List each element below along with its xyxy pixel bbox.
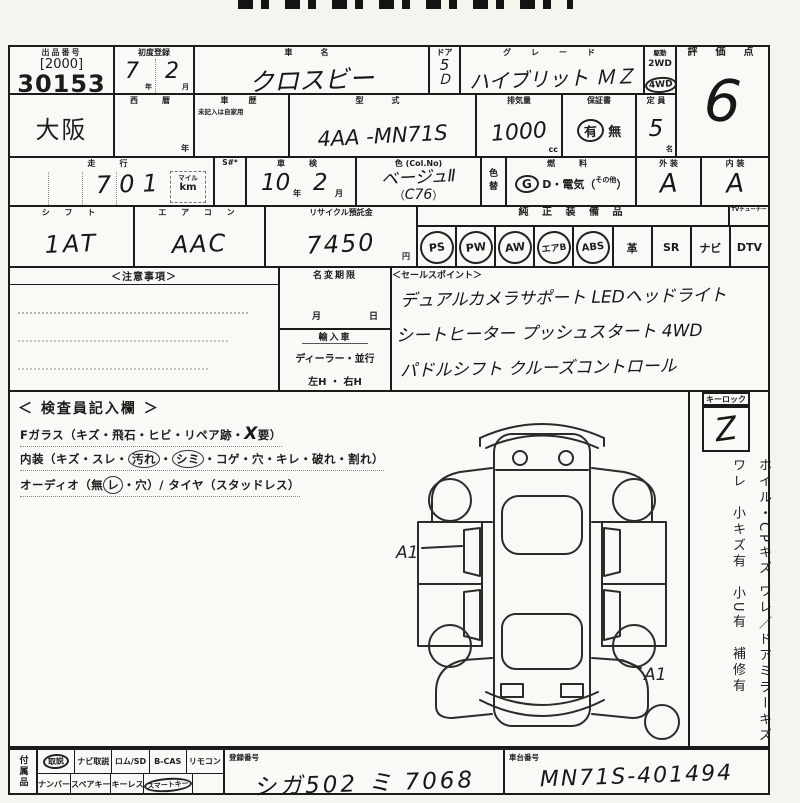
shaken-label: 車 検 [247,158,355,169]
sidebar-divider [688,392,690,750]
history-note: 未記入は自家用 [198,106,288,116]
accessories-label: 付属品 [10,750,36,793]
color-code-close: ） [432,189,443,202]
exterior-cell: 外 装 A [635,156,702,207]
shaken-month-unit: 月 [335,188,343,199]
acc-keyless: キーレス [110,774,143,795]
recycle-value: 7450 [265,226,416,262]
mileage-value: 701 [96,169,167,199]
acc-spare-key: スペアキー [70,774,110,795]
registration-number-cell: 登録番号 シガ502 ミ 7068 [223,748,505,795]
seireki-unit: 年 [181,143,189,154]
color-change-label-2: 替 [482,179,505,192]
seireki-label2: 西 暦 [115,95,193,106]
mileage-unit-km: km [171,182,205,193]
door-cell: ドア 5 Ｄ [428,45,461,95]
inspector-area: ＜ 検査員記入欄 ＞ Fガラス（キズ・飛石・ヒビ・リペア跡・X要） 内装（キズ・… [8,390,770,748]
aircon-value: AAC [135,228,265,260]
car-name-cell: 車 名 クロスビー [193,45,430,95]
import-box: 輸入車 ディーラー・並行 左H ・ 右H [278,328,392,392]
history-cell: 車 歴 未記入は自家用 [193,93,290,158]
inspector-line2-dirt-circled: 汚れ [128,450,160,468]
sales-points-box: ＜セールスポイント＞ デュアルカメラサポート LEDヘッドライト シートヒーター… [390,266,770,392]
score-cell: 評 価 点 6 [675,45,770,158]
fuel-close: ） [616,178,627,191]
color-change-cell: 色 替 [480,156,507,207]
shift-label: シ フ ト [10,207,133,218]
shaken-month: 2 [313,170,328,196]
mileage-flag-cell: S#* [213,156,247,207]
equip-navi-label: ナビ [699,240,721,256]
color-change-label-1: 色 [482,166,505,179]
inspector-line1-post: 要） [258,428,282,442]
model-label: 型 式 [290,95,475,106]
color-code-open: （ [394,189,405,202]
first-reg-year-value: 7 [125,59,139,84]
mileage-flag: S#* [215,158,245,167]
displacement-cell: 排気量 1000 cc [475,93,563,158]
equipment-tuner-note: TVチューナー [730,207,768,225]
fuel-other: その他 [595,176,616,184]
recycle-label: リサイクル預託金 [266,207,416,218]
equip-pw-circled: PW [457,229,494,265]
warranty-no: 無 [608,125,621,140]
shift-cell: シ フ ト 1AT [8,205,135,268]
sales-points-label: ＜セールスポイント＞ [392,268,768,281]
aircon-label: エ ア コ ン [135,207,264,218]
car-damage-diagram: A1 A1 [394,396,686,748]
clipped-title [238,0,573,9]
inspector-line2-stain-circled: シミ [172,450,204,468]
inspector-line2-pre: 内装（キズ・スレ・ [20,452,128,466]
accessories-grid: 取説 ナビ取説 ロム/SD B-CAS リモコン ナンバー スペアキー キーレス… [36,748,225,795]
keylock-mark: Z [712,407,740,452]
grade-label: グ レ ー ド [461,47,643,58]
warranty-label: 保証書 [563,95,635,106]
name-change-day: 日 [369,309,378,322]
keylock-label: キーロック [702,392,750,406]
acc-navi-manual: ナビ取説 [74,750,111,774]
capacity-label: 定 員 [637,95,675,106]
model-code-cell: 型 式 4AA -MN71S [288,93,477,158]
capacity-value: 5 [637,116,675,142]
acc-remote-label: リモコン [189,756,221,767]
warranty-cell: 保証書 有 無 [561,93,637,158]
inspector-line-1: Fガラス（キズ・飛石・ヒビ・リペア跡・X要） [20,424,282,447]
registration-label: 登録番号 [229,752,259,763]
grade-cell: グ レ ー ド ハイブリット ＭＺ [459,45,645,95]
registration-value: シガ502 ミ 7068 [224,759,503,803]
notes-label: ＜注意事項＞ [10,268,278,285]
inspector-line-3: オーディオ（無レ・穴）/ タイヤ（スタッドレス） [20,476,300,497]
acc-rom-sd-label: ロム/SD [115,756,146,767]
equip-airbag: エアB [533,227,572,268]
door-value: 5 [430,58,459,73]
shaken-year-unit: 年 [293,188,301,199]
mileage-unit-mile: マイル [171,172,205,182]
acc-spare-key-label: スペアキー [71,779,110,790]
equip-pw: PW [455,227,494,268]
equip-sr: SR [651,227,690,268]
score-value: 6 [675,64,771,138]
damage-mark-a1-left: A1 [395,543,418,563]
chassis-value: MN71S-401494 [505,759,769,793]
acc-manual: 取説 [38,750,74,774]
equip-dtv: DTV [729,227,768,268]
equipment-cell: 純 正 装 備 品 TVチューナー PS PW AW エアB ABS 革 SR … [416,205,770,268]
acc-empty [192,774,223,795]
first-reg-year-unit: 年 [145,82,152,92]
warranty-yes-circled: 有 [576,118,605,143]
exterior-value: A [636,167,700,200]
drive-option-4wd-circled: 4WD [644,76,677,94]
keylock-box: Z [702,406,750,452]
equip-abs: ABS [572,227,611,268]
first-reg-month-unit: 月 [182,82,189,92]
damage-mark-a1-right: A1 [643,665,666,685]
chassis-number-cell: 車台番号 MN71S-401494 [503,748,770,795]
equipment-label: 純 正 装 備 品 [418,207,730,225]
accessories-label-cell: 付属品 [8,748,38,795]
acc-number-plate: ナンバー [38,774,70,795]
mileage-label: 走 行 [10,158,213,169]
fuel-g-circled: G [514,174,539,194]
drive-option-2wd: 2WD [645,59,675,69]
shaken-cell: 車 検 10 年 2 月 [245,156,357,207]
equip-leather: 革 [612,227,651,268]
notes-box: ＜注意事項＞ [8,266,280,392]
acc-bcas: B-CAS [149,750,186,774]
color-code: C76 [405,187,433,203]
equip-airbag-circled: エアB [535,229,572,265]
first-registration-cell: 初度登録 7 年 2 月 [113,45,195,95]
recycle-fee-cell: リサイクル預託金 7450 円 [264,205,418,268]
acc-rom-sd: ロム/SD [111,750,148,774]
acc-remote: リモコン [186,750,223,774]
import-label: 輸入車 [302,330,368,344]
acc-keyless-label: キーレス [111,779,143,790]
inspector-line3-post: ・穴）/ タイヤ（スタッドレス） [123,478,300,492]
inspector-line2-mid: ・ [160,452,172,466]
acc-manual-circled: 取説 [43,753,70,770]
acc-smart-key: スマートキー [143,774,192,795]
car-name-label: 車 名 [195,47,428,58]
sales-line-2: シートヒーター プッシュスタート 4WD [396,315,768,346]
lot-number-cell: 出品番号 [2000] 30153 [8,45,115,95]
recycle-unit: 円 [402,251,410,262]
acc-navi-manual-label: ナビ取説 [77,756,109,767]
inspector-line3-check-circled: レ [103,476,123,494]
grade-value: ハイブリット ＭＺ [461,60,644,95]
acc-number-plate-label: ナンバー [38,779,70,790]
shaken-year: 10 [261,170,290,196]
equip-ps-circled: PS [418,229,455,265]
displacement-unit: cc [549,145,558,154]
equip-abs-circled: ABS [574,229,611,265]
model-value: 4AA -MN71S [289,119,475,153]
name-change-label: 名変期限 [280,268,390,281]
inspector-line1-mark: X [244,424,258,444]
inspector-label: ＜ 検査員記入欄 ＞ [18,398,160,418]
equip-navi: ナビ [690,227,729,268]
fuel-mid: D・電気（ [542,178,595,191]
import-dealer-line: ディーラー・並行 [280,350,390,365]
history-label: 車 歴 [195,95,288,106]
fuel-cell: 燃 料 G D・電気（その他） [505,156,637,207]
interior-value: A [701,167,768,200]
equip-aw: AW [494,227,533,268]
displacement-label: 排気量 [477,95,561,106]
inspector-line1-pre: Fガラス（キズ・飛石・ヒビ・リペア跡・ [20,428,244,442]
displacement-value: 1000 [476,117,562,148]
name-change-box: 名変期限 月 日 [278,266,392,330]
sales-line-3: パドルシフト クルーズコントロール [400,350,768,381]
sales-line-1: デュアルカメラサポート LEDヘッドライト [400,280,768,311]
score-label: 評 価 点 [677,47,768,59]
drive-cell: 駆動 2WD 4WD [643,45,677,95]
first-reg-month-value: 2 [165,59,179,84]
equip-aw-circled: AW [496,229,533,265]
chassis-label: 車台番号 [509,752,539,763]
side-condition-note: ホイル・CPキズ ワレ／ドアミラーキズ ワレ 小キズ有 小U有 補修有 [696,458,776,754]
equip-ps: PS [418,227,455,268]
door-suffix: Ｄ [430,73,459,88]
import-handle-line: 左H ・ 右H [280,373,390,388]
interior-cell: 内 装 A [700,156,770,207]
capacity-cell: 定 員 5 名 [635,93,677,158]
equip-sr-label: SR [663,241,679,254]
inspector-line3-pre: オーディオ（無 [20,478,103,492]
seireki-cell: 西 暦 年 [113,93,195,158]
acc-smart-key-circled: スマートキー [144,776,193,793]
drive-label: 駆動 [645,47,675,57]
mileage-cell: 走 行 701 マイル km [8,156,215,207]
auction-site: 大阪 [10,110,113,145]
color-cell: 色 (Col.No) ベージュⅡ （C76） [355,156,482,207]
aircon-cell: エ ア コ ン AAC [133,205,266,268]
equip-dtv-label: DTV [737,241,762,254]
first-registration-label: 初度登録 [115,47,193,58]
capacity-unit: 名 [666,144,673,154]
equip-leather-label: 革 [627,240,638,256]
acc-bcas-label: B-CAS [154,757,181,766]
inspector-line-2: 内装（キズ・スレ・汚れ・シミ・コゲ・穴・キレ・破れ・割れ） [20,450,384,471]
name-change-month: 月 [312,309,321,322]
inspector-line2-post: ・コゲ・穴・キレ・破れ・割れ） [204,452,384,466]
fuel-label: 燃 料 [507,158,635,169]
auction-site-cell: 大阪 [8,93,115,158]
shift-value: 1AT [10,228,134,260]
first-reg-divider [155,59,156,93]
